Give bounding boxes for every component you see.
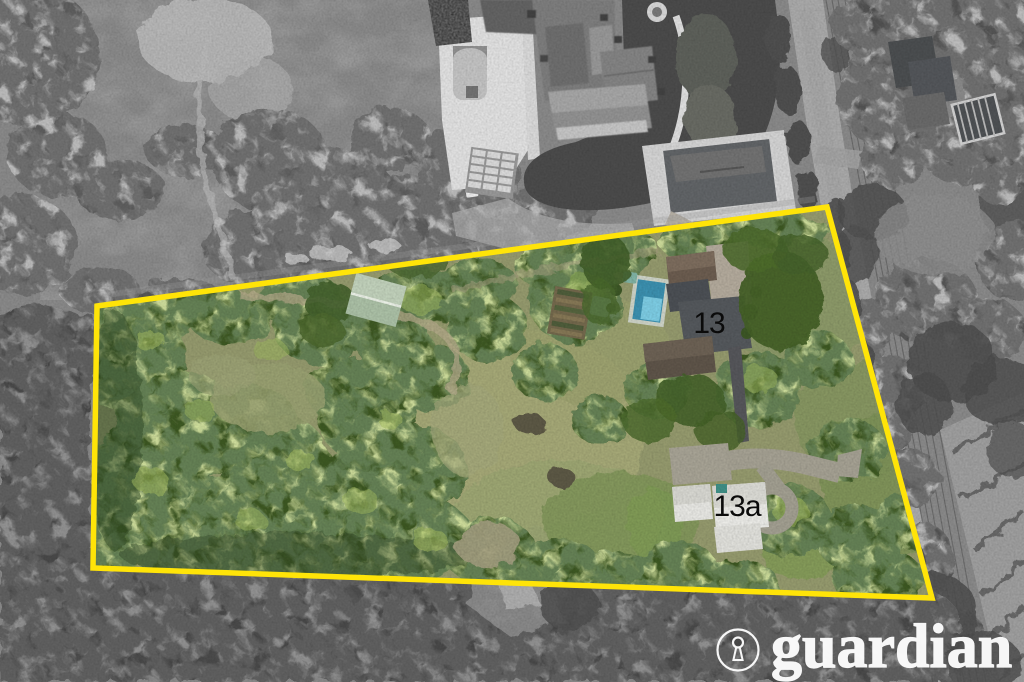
svg-text:guardian: guardian bbox=[771, 613, 1012, 681]
svg-text:13a: 13a bbox=[713, 490, 761, 523]
svg-text:13: 13 bbox=[693, 307, 725, 340]
